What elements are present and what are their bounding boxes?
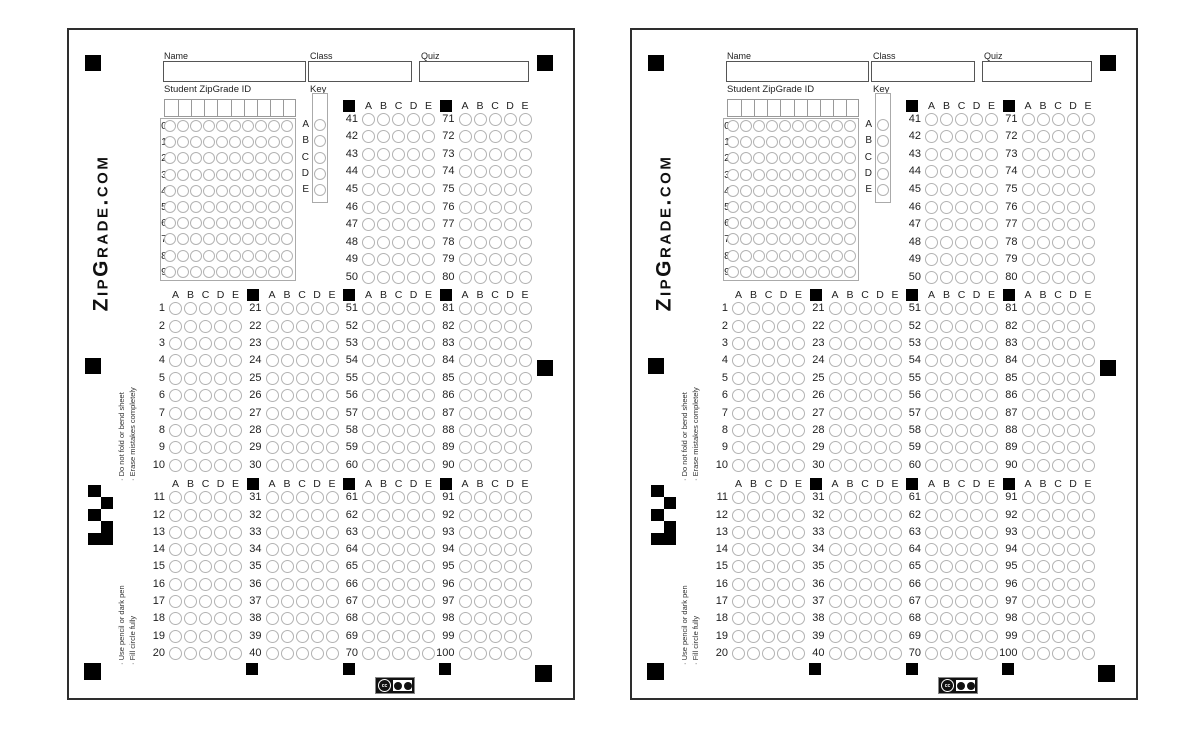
answer-bubble[interactable] [844, 560, 857, 573]
answer-bubble[interactable] [377, 595, 390, 608]
answer-bubble[interactable] [732, 491, 745, 504]
answer-bubble[interactable] [1037, 491, 1050, 504]
answer-bubble[interactable] [377, 612, 390, 625]
answer-bubble[interactable] [184, 509, 197, 522]
answer-bubble[interactable] [859, 595, 872, 608]
answer-bubble[interactable] [1082, 491, 1095, 504]
answer-bubble[interactable] [281, 612, 294, 625]
answer-bubble[interactable] [1082, 630, 1095, 643]
answer-bubble[interactable] [940, 578, 953, 591]
answer-bubble[interactable] [392, 560, 405, 573]
answer-bubble[interactable] [1082, 509, 1095, 522]
answer-bubble[interactable] [169, 595, 182, 608]
answer-bubble[interactable] [955, 595, 968, 608]
answer-bubble[interactable] [970, 630, 983, 643]
answer-bubble[interactable] [392, 578, 405, 591]
answer-bubble[interactable] [762, 647, 775, 660]
answer-bubble[interactable] [829, 647, 842, 660]
answer-bubble[interactable] [377, 630, 390, 643]
answer-bubble[interactable] [199, 612, 212, 625]
answer-bubble[interactable] [844, 612, 857, 625]
answer-bubble[interactable] [169, 543, 182, 556]
answer-bubble[interactable] [925, 595, 938, 608]
answer-bubble[interactable] [214, 560, 227, 573]
answer-bubble[interactable] [184, 595, 197, 608]
answer-bubble[interactable] [1067, 560, 1080, 573]
answer-bubble[interactable] [1022, 595, 1035, 608]
answer-bubble[interactable] [1022, 526, 1035, 539]
answer-bubble[interactable] [199, 647, 212, 660]
answer-bubble[interactable] [311, 595, 324, 608]
answer-bubble[interactable] [407, 509, 420, 522]
answer-bubble[interactable] [407, 543, 420, 556]
answer-bubble[interactable] [1052, 595, 1065, 608]
answer-bubble[interactable] [407, 612, 420, 625]
answer-bubble[interactable] [489, 509, 502, 522]
answer-bubble[interactable] [459, 560, 472, 573]
answer-bubble[interactable] [199, 560, 212, 573]
answer-bubble[interactable] [281, 560, 294, 573]
answer-bubble[interactable] [214, 630, 227, 643]
answer-bubble[interactable] [970, 595, 983, 608]
answer-bubble[interactable] [296, 543, 309, 556]
answer-bubble[interactable] [266, 560, 279, 573]
answer-bubble[interactable] [955, 630, 968, 643]
answer-bubble[interactable] [377, 578, 390, 591]
answer-bubble[interactable] [459, 630, 472, 643]
answer-bubble[interactable] [296, 595, 309, 608]
answer-bubble[interactable] [844, 595, 857, 608]
answer-bubble[interactable] [392, 595, 405, 608]
answer-bubble[interactable] [940, 509, 953, 522]
answer-bubble[interactable] [1052, 630, 1065, 643]
answer-bubble[interactable] [970, 526, 983, 539]
answer-bubble[interactable] [407, 526, 420, 539]
answer-bubble[interactable] [519, 630, 532, 643]
answer-bubble[interactable] [377, 491, 390, 504]
answer-bubble[interactable] [777, 526, 790, 539]
answer-bubble[interactable] [214, 595, 227, 608]
answer-bubble[interactable] [940, 612, 953, 625]
answer-bubble[interactable] [747, 595, 760, 608]
answer-bubble[interactable] [199, 543, 212, 556]
answer-bubble[interactable] [1082, 526, 1095, 539]
answer-bubble[interactable] [955, 647, 968, 660]
answer-bubble[interactable] [747, 526, 760, 539]
answer-bubble[interactable] [214, 647, 227, 660]
answer-bubble[interactable] [829, 560, 842, 573]
answer-bubble[interactable] [504, 630, 517, 643]
answer-bubble[interactable] [777, 595, 790, 608]
answer-bubble[interactable] [296, 560, 309, 573]
answer-bubble[interactable] [311, 578, 324, 591]
answer-bubble[interactable] [169, 630, 182, 643]
answer-bubble[interactable] [925, 491, 938, 504]
answer-bubble[interactable] [169, 526, 182, 539]
answer-bubble[interactable] [777, 578, 790, 591]
answer-bubble[interactable] [970, 578, 983, 591]
answer-bubble[interactable] [407, 578, 420, 591]
answer-bubble[interactable] [266, 491, 279, 504]
answer-bubble[interactable] [184, 630, 197, 643]
answer-bubble[interactable] [407, 491, 420, 504]
answer-bubble[interactable] [940, 543, 953, 556]
answer-bubble[interactable] [519, 595, 532, 608]
answer-bubble[interactable] [844, 491, 857, 504]
answer-bubble[interactable] [777, 647, 790, 660]
answer-bubble[interactable] [459, 647, 472, 660]
answer-bubble[interactable] [777, 509, 790, 522]
answer-bubble[interactable] [489, 560, 502, 573]
answer-bubble[interactable] [1067, 491, 1080, 504]
answer-bubble[interactable] [1082, 595, 1095, 608]
answer-bubble[interactable] [859, 543, 872, 556]
answer-bubble[interactable] [859, 526, 872, 539]
answer-bubble[interactable] [1052, 509, 1065, 522]
answer-bubble[interactable] [266, 509, 279, 522]
answer-bubble[interactable] [844, 647, 857, 660]
answer-bubble[interactable] [1022, 630, 1035, 643]
answer-bubble[interactable] [777, 543, 790, 556]
answer-bubble[interactable] [970, 647, 983, 660]
answer-bubble[interactable] [859, 578, 872, 591]
answer-bubble[interactable] [311, 560, 324, 573]
answer-bubble[interactable] [184, 612, 197, 625]
answer-bubble[interactable] [732, 595, 745, 608]
answer-bubble[interactable] [311, 612, 324, 625]
answer-bubble[interactable] [874, 526, 887, 539]
answer-bubble[interactable] [829, 543, 842, 556]
answer-bubble[interactable] [311, 526, 324, 539]
answer-bubble[interactable] [489, 595, 502, 608]
answer-bubble[interactable] [407, 630, 420, 643]
answer-bubble[interactable] [732, 543, 745, 556]
answer-bubble[interactable] [859, 630, 872, 643]
answer-bubble[interactable] [1082, 560, 1095, 573]
answer-bubble[interactable] [266, 543, 279, 556]
answer-bubble[interactable] [392, 612, 405, 625]
answer-bubble[interactable] [940, 595, 953, 608]
answer-bubble[interactable] [1037, 560, 1050, 573]
answer-bubble[interactable] [504, 491, 517, 504]
answer-bubble[interactable] [362, 595, 375, 608]
answer-bubble[interactable] [829, 509, 842, 522]
answer-bubble[interactable] [874, 647, 887, 660]
answer-bubble[interactable] [519, 526, 532, 539]
answer-bubble[interactable] [874, 543, 887, 556]
answer-bubble[interactable] [732, 526, 745, 539]
answer-bubble[interactable] [459, 578, 472, 591]
answer-bubble[interactable] [955, 612, 968, 625]
answer-bubble[interactable] [474, 630, 487, 643]
answer-bubble[interactable] [1052, 560, 1065, 573]
answer-bubble[interactable] [844, 509, 857, 522]
answer-bubble[interactable] [266, 647, 279, 660]
answer-bubble[interactable] [1052, 526, 1065, 539]
answer-bubble[interactable] [1052, 543, 1065, 556]
answer-bubble[interactable] [970, 612, 983, 625]
answer-bubble[interactable] [266, 595, 279, 608]
answer-bubble[interactable] [1037, 578, 1050, 591]
answer-bubble[interactable] [732, 509, 745, 522]
answer-bubble[interactable] [747, 509, 760, 522]
answer-bubble[interactable] [844, 630, 857, 643]
answer-bubble[interactable] [362, 630, 375, 643]
answer-bubble[interactable] [1022, 491, 1035, 504]
answer-bubble[interactable] [747, 578, 760, 591]
answer-bubble[interactable] [940, 630, 953, 643]
answer-bubble[interactable] [214, 543, 227, 556]
answer-bubble[interactable] [377, 647, 390, 660]
answer-bubble[interactable] [296, 647, 309, 660]
answer-bubble[interactable] [184, 526, 197, 539]
answer-bubble[interactable] [311, 647, 324, 660]
answer-bubble[interactable] [1082, 612, 1095, 625]
answer-bubble[interactable] [184, 560, 197, 573]
answer-bubble[interactable] [732, 630, 745, 643]
answer-bubble[interactable] [762, 526, 775, 539]
answer-bubble[interactable] [281, 526, 294, 539]
answer-bubble[interactable] [504, 560, 517, 573]
answer-bubble[interactable] [1067, 595, 1080, 608]
answer-bubble[interactable] [940, 647, 953, 660]
answer-bubble[interactable] [199, 526, 212, 539]
answer-bubble[interactable] [281, 647, 294, 660]
answer-bubble[interactable] [296, 491, 309, 504]
answer-bubble[interactable] [829, 595, 842, 608]
answer-bubble[interactable] [940, 560, 953, 573]
answer-bubble[interactable] [829, 630, 842, 643]
answer-bubble[interactable] [732, 560, 745, 573]
answer-bubble[interactable] [1022, 560, 1035, 573]
answer-bubble[interactable] [199, 578, 212, 591]
answer-bubble[interactable] [474, 509, 487, 522]
answer-bubble[interactable] [1067, 526, 1080, 539]
answer-bubble[interactable] [874, 509, 887, 522]
answer-bubble[interactable] [169, 560, 182, 573]
answer-bubble[interactable] [459, 491, 472, 504]
answer-bubble[interactable] [407, 560, 420, 573]
answer-bubble[interactable] [311, 543, 324, 556]
answer-bubble[interactable] [362, 612, 375, 625]
answer-bubble[interactable] [829, 578, 842, 591]
answer-bubble[interactable] [859, 612, 872, 625]
answer-bubble[interactable] [925, 630, 938, 643]
answer-bubble[interactable] [169, 612, 182, 625]
answer-bubble[interactable] [377, 543, 390, 556]
answer-bubble[interactable] [296, 630, 309, 643]
answer-bubble[interactable] [1082, 578, 1095, 591]
answer-bubble[interactable] [970, 560, 983, 573]
answer-bubble[interactable] [955, 543, 968, 556]
answer-bubble[interactable] [940, 526, 953, 539]
answer-bubble[interactable] [407, 647, 420, 660]
answer-bubble[interactable] [762, 560, 775, 573]
answer-bubble[interactable] [1022, 543, 1035, 556]
answer-bubble[interactable] [955, 578, 968, 591]
answer-bubble[interactable] [1037, 612, 1050, 625]
answer-bubble[interactable] [1067, 612, 1080, 625]
answer-bubble[interactable] [281, 578, 294, 591]
answer-bubble[interactable] [859, 509, 872, 522]
answer-bubble[interactable] [184, 491, 197, 504]
answer-bubble[interactable] [1022, 509, 1035, 522]
answer-bubble[interactable] [925, 578, 938, 591]
answer-bubble[interactable] [459, 526, 472, 539]
answer-bubble[interactable] [266, 526, 279, 539]
answer-bubble[interactable] [169, 578, 182, 591]
answer-bubble[interactable] [1022, 578, 1035, 591]
answer-bubble[interactable] [296, 578, 309, 591]
answer-bubble[interactable] [925, 647, 938, 660]
answer-bubble[interactable] [311, 509, 324, 522]
answer-bubble[interactable] [874, 578, 887, 591]
answer-bubble[interactable] [970, 509, 983, 522]
answer-bubble[interactable] [1067, 630, 1080, 643]
answer-bubble[interactable] [459, 595, 472, 608]
answer-bubble[interactable] [169, 647, 182, 660]
answer-bubble[interactable] [504, 578, 517, 591]
answer-bubble[interactable] [489, 647, 502, 660]
answer-bubble[interactable] [829, 612, 842, 625]
answer-bubble[interactable] [169, 491, 182, 504]
answer-bubble[interactable] [474, 578, 487, 591]
answer-bubble[interactable] [392, 526, 405, 539]
answer-bubble[interactable] [777, 560, 790, 573]
answer-bubble[interactable] [1022, 612, 1035, 625]
answer-bubble[interactable] [762, 491, 775, 504]
answer-bubble[interactable] [362, 543, 375, 556]
answer-bubble[interactable] [732, 647, 745, 660]
answer-bubble[interactable] [489, 491, 502, 504]
answer-bubble[interactable] [925, 612, 938, 625]
answer-bubble[interactable] [199, 630, 212, 643]
answer-bubble[interactable] [1082, 543, 1095, 556]
answer-bubble[interactable] [519, 578, 532, 591]
answer-bubble[interactable] [504, 612, 517, 625]
answer-bubble[interactable] [747, 630, 760, 643]
answer-bubble[interactable] [392, 509, 405, 522]
answer-bubble[interactable] [407, 595, 420, 608]
answer-bubble[interactable] [1052, 647, 1065, 660]
answer-bubble[interactable] [311, 491, 324, 504]
answer-bubble[interactable] [214, 509, 227, 522]
answer-bubble[interactable] [955, 491, 968, 504]
answer-bubble[interactable] [214, 491, 227, 504]
answer-bubble[interactable] [925, 526, 938, 539]
answer-bubble[interactable] [1067, 509, 1080, 522]
answer-bubble[interactable] [1052, 612, 1065, 625]
answer-bubble[interactable] [459, 612, 472, 625]
answer-bubble[interactable] [777, 612, 790, 625]
answer-bubble[interactable] [214, 526, 227, 539]
answer-bubble[interactable] [266, 630, 279, 643]
answer-bubble[interactable] [474, 526, 487, 539]
answer-bubble[interactable] [392, 543, 405, 556]
answer-bubble[interactable] [519, 491, 532, 504]
answer-bubble[interactable] [266, 612, 279, 625]
answer-bubble[interactable] [777, 630, 790, 643]
answer-bubble[interactable] [474, 595, 487, 608]
answer-bubble[interactable] [732, 578, 745, 591]
answer-bubble[interactable] [970, 491, 983, 504]
answer-bubble[interactable] [1082, 647, 1095, 660]
answer-bubble[interactable] [970, 543, 983, 556]
answer-bubble[interactable] [859, 647, 872, 660]
answer-bubble[interactable] [362, 560, 375, 573]
answer-bubble[interactable] [1037, 509, 1050, 522]
answer-bubble[interactable] [281, 595, 294, 608]
answer-bubble[interactable] [747, 491, 760, 504]
answer-bubble[interactable] [844, 578, 857, 591]
answer-bubble[interactable] [874, 491, 887, 504]
answer-bubble[interactable] [281, 509, 294, 522]
answer-bubble[interactable] [504, 595, 517, 608]
answer-bubble[interactable] [955, 509, 968, 522]
answer-bubble[interactable] [459, 543, 472, 556]
answer-bubble[interactable] [925, 560, 938, 573]
answer-bubble[interactable] [362, 647, 375, 660]
answer-bubble[interactable] [732, 612, 745, 625]
answer-bubble[interactable] [362, 526, 375, 539]
answer-bubble[interactable] [762, 578, 775, 591]
answer-bubble[interactable] [1052, 578, 1065, 591]
answer-bubble[interactable] [1022, 647, 1035, 660]
answer-bubble[interactable] [925, 543, 938, 556]
answer-bubble[interactable] [377, 509, 390, 522]
answer-bubble[interactable] [519, 612, 532, 625]
answer-bubble[interactable] [777, 491, 790, 504]
answer-bubble[interactable] [296, 612, 309, 625]
answer-bubble[interactable] [874, 612, 887, 625]
answer-bubble[interactable] [1037, 630, 1050, 643]
answer-bubble[interactable] [214, 612, 227, 625]
answer-bubble[interactable] [844, 526, 857, 539]
answer-bubble[interactable] [1067, 578, 1080, 591]
answer-bubble[interactable] [1037, 543, 1050, 556]
answer-bubble[interactable] [489, 630, 502, 643]
answer-bubble[interactable] [296, 509, 309, 522]
answer-bubble[interactable] [392, 491, 405, 504]
answer-bubble[interactable] [489, 578, 502, 591]
answer-bubble[interactable] [762, 612, 775, 625]
answer-bubble[interactable] [281, 491, 294, 504]
answer-bubble[interactable] [1037, 526, 1050, 539]
answer-bubble[interactable] [874, 630, 887, 643]
answer-bubble[interactable] [169, 509, 182, 522]
answer-bubble[interactable] [489, 526, 502, 539]
answer-bubble[interactable] [747, 560, 760, 573]
answer-bubble[interactable] [1037, 595, 1050, 608]
answer-bubble[interactable] [362, 578, 375, 591]
answer-bubble[interactable] [1067, 543, 1080, 556]
answer-bubble[interactable] [199, 509, 212, 522]
answer-bubble[interactable] [762, 595, 775, 608]
answer-bubble[interactable] [747, 543, 760, 556]
answer-bubble[interactable] [266, 578, 279, 591]
answer-bubble[interactable] [459, 509, 472, 522]
answer-bubble[interactable] [281, 543, 294, 556]
answer-bubble[interactable] [474, 647, 487, 660]
answer-bubble[interactable] [747, 612, 760, 625]
answer-bubble[interactable] [762, 630, 775, 643]
answer-bubble[interactable] [1037, 647, 1050, 660]
answer-bubble[interactable] [474, 560, 487, 573]
answer-bubble[interactable] [874, 595, 887, 608]
answer-bubble[interactable] [859, 491, 872, 504]
answer-bubble[interactable] [362, 491, 375, 504]
answer-bubble[interactable] [489, 543, 502, 556]
